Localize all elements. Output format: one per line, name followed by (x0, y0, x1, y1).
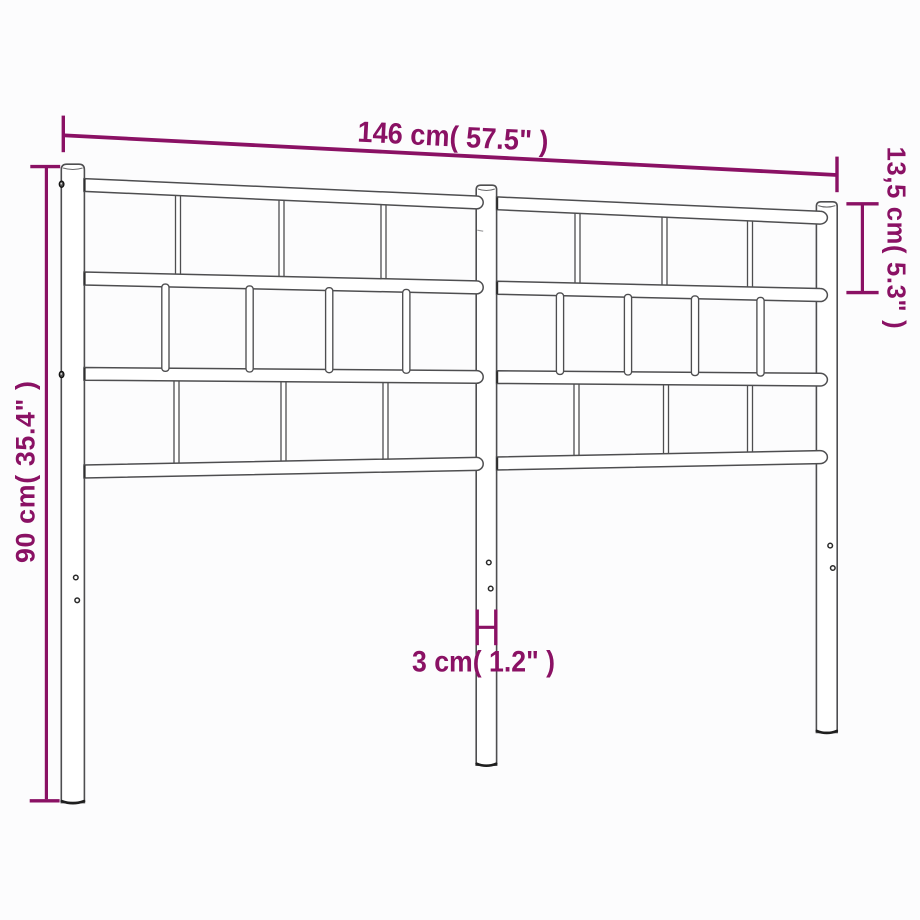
svg-text:13,5 cm( 5.3" ): 13,5 cm( 5.3" ) (881, 147, 909, 329)
svg-text:90 cm( 35.4" ): 90 cm( 35.4" ) (11, 381, 41, 563)
svg-text:3 cm( 1.2" ): 3 cm( 1.2" ) (412, 645, 555, 678)
